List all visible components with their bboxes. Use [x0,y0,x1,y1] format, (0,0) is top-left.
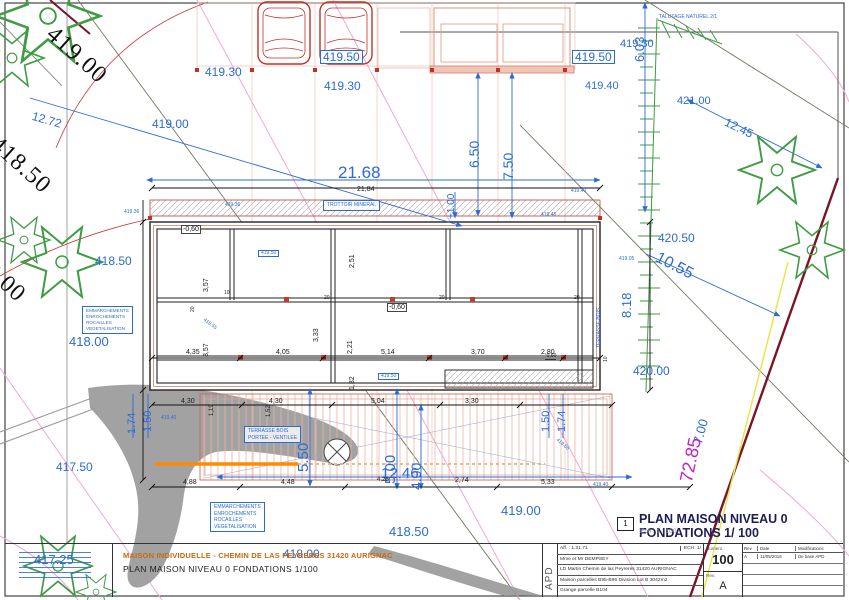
scale-ref: ECH: 1/ [680,546,701,551]
level-badge: 419.50 [572,50,615,64]
note-emmarchements: EMMARCHEMENTS ENROCHEMENTS ROCAILLES VEG… [210,502,265,532]
title-block: MAISON INDIVIDUELLE - CHEMIN DE LAS PEYR… [5,543,843,597]
parcel-info: Maison parcelles B95-B96 Division Lot B … [560,578,667,583]
architect-logo-cell [5,544,113,597]
site-plan-drawing [0,0,849,600]
sheet-title: PLAN MAISON NIVEAU 0 FONDATIONS 1/100 [123,564,318,574]
dimension-label: 1,32 [349,376,356,390]
level-label: 419.40 [585,81,619,92]
drawing-number-badge: 1 [617,517,634,531]
drawing-title: PLAN MAISON NIVEAU 0 FONDATIONS 1/ 100 [639,512,849,540]
dimension-label: 1,52 [266,405,272,417]
level-delta-label: -0,60 [545,354,556,360]
distance-label: 5.50 [296,443,311,472]
distance-label: 6.50 [467,141,481,168]
numero-label: Numero [706,546,722,551]
spot-level-label: 419.36 [124,210,139,215]
dimension-label: 5,14 [381,349,395,356]
barn-parcel-info: Grange parcelle B104 [560,588,608,593]
dimension-label: 4,30 [269,398,283,405]
rev-value-cell: A [744,554,756,559]
level-label: 418.00 [69,335,109,348]
distance-label: 1.50 [541,411,552,432]
building-walls [150,222,600,390]
revision-row [743,585,843,596]
level-label: 419.00 [152,118,189,130]
level-delta-label: +1.00 [447,194,457,219]
info-row: Mme et Mr DEMPSEY [557,555,703,566]
dimension-label: 2,74 [455,477,469,484]
sheet-number: 100 [704,552,742,567]
affaire-ref: Aff. : 1.31.71 [560,546,588,551]
dimension-label: 3,30 [465,398,479,405]
spot-level-label: 419.45 [541,213,556,218]
level-badge: 419.50 [258,250,279,257]
note-trottoir: TROTTOIR MINERAL [323,200,380,211]
car-icon [258,2,310,64]
distance-label: 1.74 [127,413,138,434]
drawing-sheet: 419.00 418.50 8.00 419.30 419.00 12.72 4… [0,0,849,600]
wall-dim-label: 10 [604,356,609,362]
info-row: Grange parcelle B104 [557,586,703,597]
note-terrasse: TERRASSE BOIS PORTEE - VENTILEE [244,426,301,443]
terrasse-side-label: TERRASSE BOIS [597,308,602,348]
survey-points [148,68,602,220]
carport [378,8,574,73]
talutage-label: TALUTAGE NATUREL 2/1 [659,15,717,20]
spot-level-label: 419.40 [161,416,176,421]
modif-col-header: Modifications [795,546,844,551]
wall-dim-label: 20 [439,296,445,301]
distance-label: 8.18 [620,293,633,318]
wall-dim-label: 20 [191,306,196,312]
rev-col-header: Rev [744,546,756,551]
level-label: 418.50 [95,255,132,267]
dimension-label: 4,30 [181,398,195,405]
level-label: 419.30 [205,66,242,78]
wall-dim-label: 10 [224,291,230,296]
distance-label: 21.68 [338,164,381,181]
dimension-label: 3,70 [471,349,485,356]
level-delta-badge: -0,60 [387,303,407,312]
info-row: Maison parcelles B95-B96 Division Lot B … [557,576,703,587]
phase-cell: APD [543,544,558,597]
talus-hatch [638,18,722,392]
dimension-label: 4,05 [276,349,290,356]
rev-label: Rev. [706,573,715,578]
spot-level-label: 419.05 [619,257,634,262]
tree-icon [0,217,50,262]
distance-label: 1.74 [557,411,568,432]
revision-table: Rev Date Modifications A 11/05/2016 De b… [743,544,843,597]
level-label: 418.50 [389,525,429,538]
dimension-label: 3,33 [313,328,320,342]
level-label: 419.30 [324,80,361,92]
spot-level-label: 419.36 [225,203,240,208]
spot-level-label: 419.40 [593,483,608,488]
level-label: 419.30 [620,39,654,50]
dimension-label: 4,35 [186,349,200,356]
site-address: LD Martin Chemin de las Peyreres 31420 A… [560,567,677,572]
info-block: APD Aff. : 1.31.71 ECH: 1/ Mme et Mr DEM… [543,544,843,597]
dimension-label: 2,21 [347,340,354,354]
dimension-label: 4,48 [281,479,295,486]
client-name: Mme et Mr DEMPSEY [560,557,609,562]
distance-label: 7.50 [501,153,515,180]
dimension-label: 5,04 [371,398,385,405]
tree-icon [22,227,102,297]
phase-label: APD [544,566,555,590]
dimension-label: 21,84 [357,186,375,193]
project-title: MAISON INDIVIDUELLE - CHEMIN DE LAS PEYR… [123,551,393,560]
project-title-cell: MAISON INDIVIDUELLE - CHEMIN DE LAS PEYR… [113,544,543,597]
dimension-label: 1,19 [209,404,215,416]
level-label: 420.00 [633,365,670,377]
date-col-header: Date [757,546,796,551]
dimension-label: 3,57 [203,278,210,292]
dimension-label: 4,28 [377,477,389,483]
dimension-label: 5,33 [541,479,555,486]
tree-icon [739,137,815,203]
level-label: 417.50 [56,461,93,473]
drain-symbol [324,439,350,465]
dimension-label: 4,88 [183,479,197,486]
distance-label: 1.50 [143,411,154,432]
architect-text-lines [19,552,91,578]
note-emmarchements: EMMARCHEMENTS ENROCHEMENTS ROCAILLES VEG… [82,306,133,334]
dimension-label: 3,57 [203,343,210,357]
rev-date-cell: 11/05/2016 [757,554,796,559]
rev-value: A [704,580,742,592]
level-badge: 419.50 [378,373,399,380]
level-badge: 419.50 [320,50,363,64]
info-row: Aff. : 1.31.71 ECH: 1/ [557,544,703,555]
rev-desc-cell: De base APD [795,554,844,559]
level-label: 421.00 [677,96,711,107]
dimension-label: 2,51 [349,254,356,268]
level-label: 420.50 [658,232,695,244]
drawing-scale: Ech : 1 : 100 [640,528,677,535]
spot-level-label: 419.40 [571,189,586,194]
wall-dim-label: 20 [324,296,330,301]
level-delta-badge: -0,60 [181,225,201,234]
sheet-number-cell: Numero 100 Rev. A [703,544,743,597]
level-label: 419.00 [501,504,541,517]
wall-dim-label: 20 [574,296,580,301]
info-row: LD Martin Chemin de las Peyreres 31420 A… [557,565,703,576]
